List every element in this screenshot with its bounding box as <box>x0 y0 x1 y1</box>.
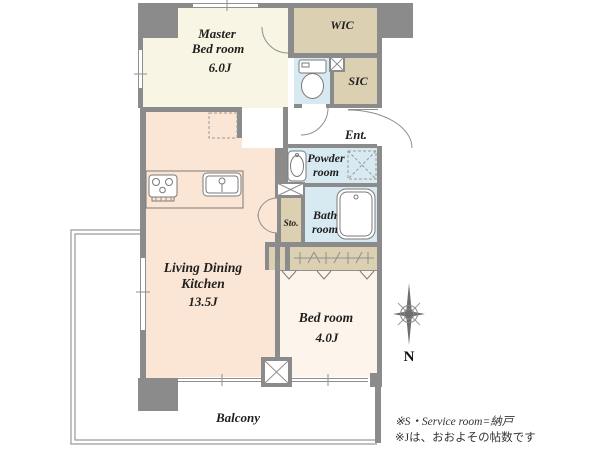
storage-label: Sto. <box>283 219 298 229</box>
balcony-label: Balcony <box>215 410 260 425</box>
sic-label: SIC <box>348 74 368 88</box>
room-ldk <box>146 111 277 378</box>
floor-plan: N Master Bed room 6.0J WIC SIC Ent. Powd… <box>0 0 600 450</box>
pipe-shaft-storage <box>277 183 304 196</box>
entrance-label: Ent. <box>344 128 367 142</box>
bathtub-icon <box>337 189 375 239</box>
toilet-door-arc <box>301 108 328 135</box>
powder-room-label-line2: room <box>313 165 339 179</box>
bedroom-label: Bed room <box>298 310 353 325</box>
footnotes: ※S・Service room=納戸 ※Jは、おおよその帖数です <box>395 415 536 444</box>
bath-room-label-line1: Bath <box>312 208 337 222</box>
ldk-size: 13.5J <box>188 294 218 309</box>
master-bedroom-size: 6.0J <box>209 60 232 75</box>
compass-needle-horizontal <box>393 311 425 317</box>
toilet-icon <box>299 60 326 99</box>
master-bedroom-label-line2: Bed room <box>191 41 244 56</box>
powder-room-label-line1: Powder <box>307 151 345 165</box>
pipe-shaft-sic <box>330 57 344 71</box>
ldk-label-line2: Kitchen <box>180 276 225 291</box>
master-bedroom-label-line1: Master <box>197 26 237 41</box>
footnote-service-room: ※S・Service room=納戸 <box>395 415 515 428</box>
footnote-jou-note: ※Jは、おおよその帖数です <box>395 430 536 444</box>
powder-sink-icon <box>288 151 306 181</box>
wic-label: WIC <box>330 18 354 32</box>
compass-icon: N <box>393 283 425 365</box>
bath-room-label-line2: room <box>312 222 338 236</box>
kitchen-sink-icon <box>203 173 241 196</box>
floor-plan-drawing: N Master Bed room 6.0J WIC SIC Ent. Powd… <box>0 0 600 450</box>
stove-icon <box>149 175 177 201</box>
ldk-label-line1: Living Dining <box>163 260 243 275</box>
pipe-shaft-balcony <box>263 359 290 385</box>
bedroom-size: 4.0J <box>315 330 339 345</box>
hallway-floor <box>242 108 283 148</box>
compass-north-label: N <box>404 349 415 365</box>
